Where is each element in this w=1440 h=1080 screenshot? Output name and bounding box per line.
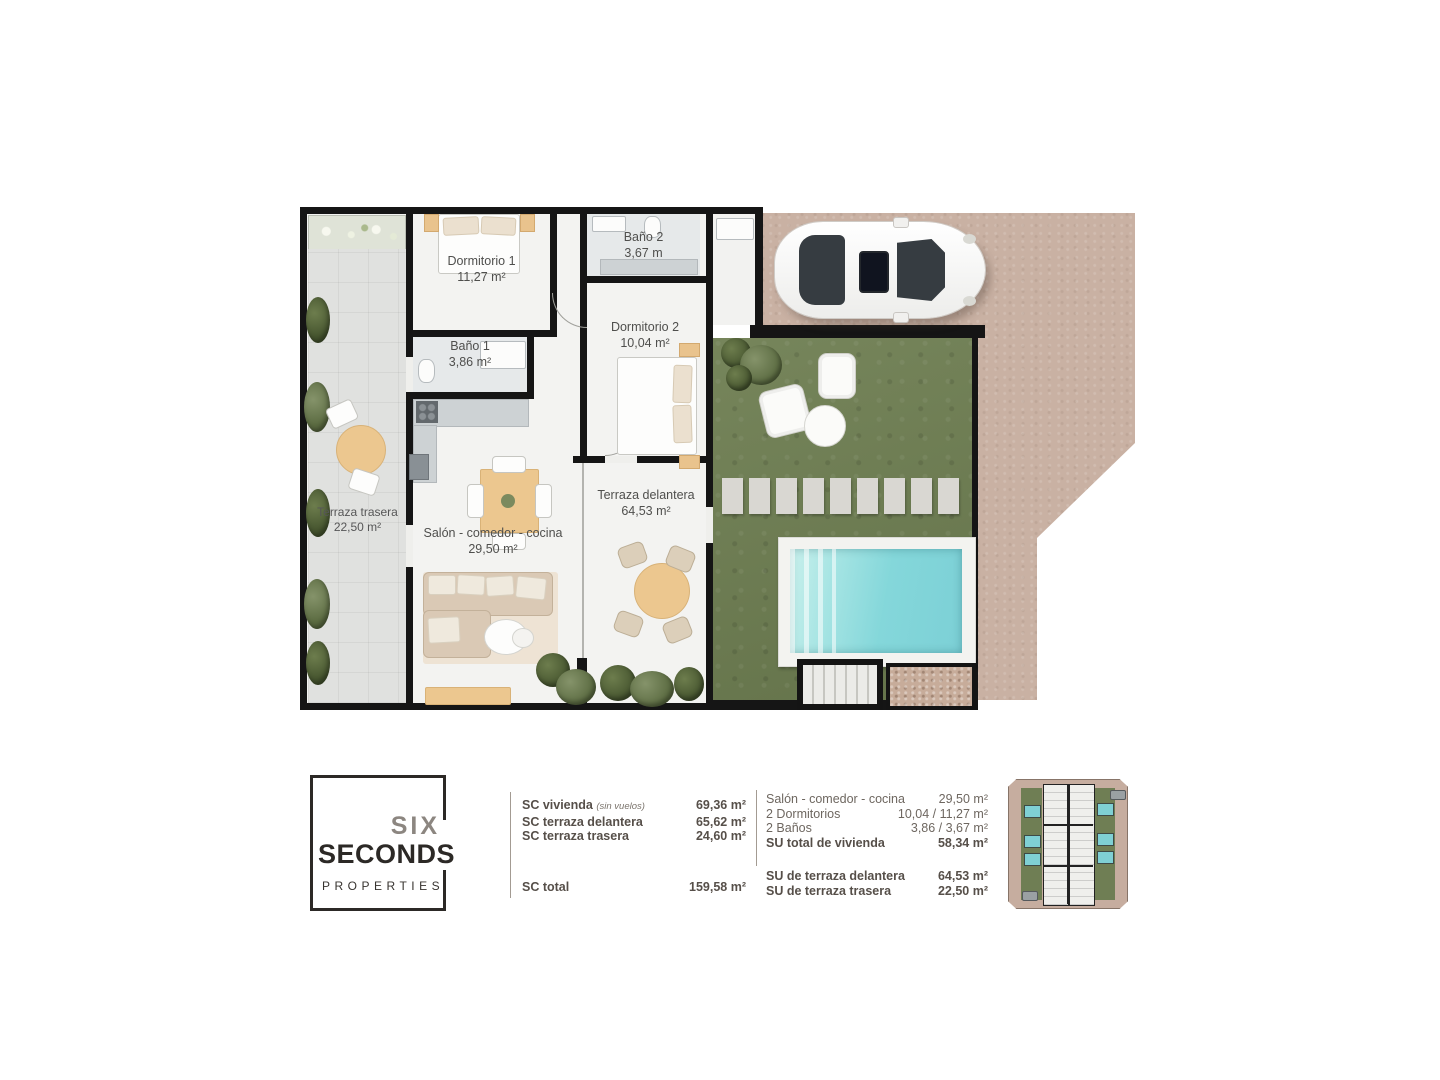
table-row: 2 Baños 3,86 / 3,67 m²	[766, 821, 988, 836]
row-value: 58,34 m²	[938, 836, 988, 851]
room-name: Salón - comedor - cocina	[410, 525, 576, 541]
table-divider-left	[510, 792, 511, 898]
thumb-pool	[1097, 833, 1114, 846]
table-row: SU total de vivienda 58,34 m²	[766, 836, 988, 851]
floor-plan: Dormitorio 1 11,27 m² Baño 2 3,67 m Baño…	[300, 207, 1135, 710]
stepping-stone	[749, 478, 770, 514]
row-value: 64,53 m²	[938, 869, 988, 884]
label-bano2: Baño 2 3,67 m	[587, 229, 700, 261]
room-name: Dormitorio 2	[587, 319, 703, 335]
dining-chair	[535, 484, 552, 518]
row-label: SC terraza trasera	[522, 829, 629, 844]
thumb-pool	[1024, 853, 1041, 866]
thumb-pool	[1097, 803, 1114, 816]
row-label: 2 Dormitorios	[766, 807, 840, 822]
stepping-stone	[857, 478, 878, 514]
dining-chair	[492, 456, 526, 473]
wall-bath1-bottom	[406, 392, 534, 399]
sc-total-row: SC total 159,58 m²	[522, 880, 746, 895]
table-row: Salón - comedor - cocina 29,50 m²	[766, 792, 988, 807]
sideboard	[425, 687, 511, 705]
table-row: 2 Dormitorios 10,04 / 11,27 m²	[766, 807, 988, 822]
row-label: 2 Baños	[766, 821, 812, 836]
thumb-car	[1110, 790, 1126, 800]
wall-bath2-left	[580, 214, 587, 276]
room-name: Dormitorio 1	[413, 253, 550, 269]
car-mirror	[893, 217, 909, 228]
salon-terrace-divider	[582, 463, 584, 659]
sofa-cushion	[428, 575, 456, 595]
room-area: 29,50 m²	[410, 541, 576, 557]
kitchen-stove	[416, 401, 438, 423]
logo-word-seconds: SECONDS	[318, 839, 456, 870]
room-name: Baño 2	[587, 229, 700, 245]
sofa-cushion	[485, 575, 514, 597]
room-area: 64,53 m²	[587, 503, 705, 519]
label-dormitorio1: Dormitorio 1 11,27 m²	[413, 253, 550, 285]
terrace-plant	[674, 667, 704, 701]
bath2-counter	[600, 259, 698, 275]
row-label: SC terraza delantera	[522, 815, 643, 830]
room-area: 10,04 m²	[587, 335, 703, 351]
pool-steps	[790, 549, 836, 653]
row-value: 159,58 m²	[689, 880, 746, 895]
row-value: 22,50 m²	[938, 884, 988, 899]
terrace-plant	[304, 579, 330, 629]
garden-door-opening	[706, 507, 713, 543]
pergola-beam	[750, 325, 985, 338]
thumb-unit-strip	[1069, 784, 1095, 906]
terrace-bistro-table	[336, 425, 386, 475]
row-value: 24,60 m²	[696, 829, 746, 844]
nightstand	[424, 214, 439, 232]
stepping-stone	[830, 478, 851, 514]
kitchen-appliance	[409, 454, 429, 480]
stepping-stone	[938, 478, 959, 514]
room-area: 3,86 m²	[413, 354, 527, 370]
su-column: Salón - comedor - cocina 29,50 m² 2 Dorm…	[766, 792, 988, 898]
thumb-divider	[1043, 865, 1093, 867]
dining-chair	[467, 484, 484, 518]
label-dormitorio2: Dormitorio 2 10,04 m²	[587, 319, 703, 351]
table-centerpiece-plant	[501, 494, 515, 508]
nightstand	[679, 455, 700, 469]
exterior-stairs	[797, 659, 883, 710]
row-label: Salón - comedor - cocina	[766, 792, 905, 807]
room-name: Baño 1	[413, 338, 527, 354]
stepping-stone	[884, 478, 905, 514]
thumb-car	[1022, 891, 1038, 901]
table-row: SU de terraza delantera 64,53 m²	[766, 869, 988, 884]
row-label: SU de terraza delantera	[766, 869, 905, 884]
coffee-table-small	[512, 628, 534, 648]
stepping-stone	[911, 478, 932, 514]
car-headlight	[963, 296, 976, 306]
label-terraza-delantera: Terraza delantera 64,53 m²	[587, 487, 705, 519]
row-value: 29,50 m²	[939, 792, 988, 807]
row-label: SU de terraza trasera	[766, 884, 891, 899]
stepping-stone	[776, 478, 797, 514]
label-terraza-trasera: Terraza trasera 22,50 m²	[308, 505, 407, 535]
car-windshield	[897, 239, 945, 301]
bed-pillow	[672, 365, 692, 404]
stepping-stone	[722, 478, 743, 514]
entry-closet	[716, 218, 754, 240]
logo-word-six: SIX	[391, 812, 440, 841]
wall-dorm1-right	[550, 214, 557, 330]
thumb-divider	[1043, 824, 1093, 826]
garden-armchair	[818, 353, 856, 399]
car-top-view	[775, 222, 985, 318]
garden-round-table	[804, 405, 846, 447]
terrace-plant	[630, 671, 674, 707]
label-salon: Salón - comedor - cocina 29,50 m²	[410, 525, 576, 557]
thumb-unit-strip	[1043, 784, 1069, 906]
sofa-cushion	[456, 574, 485, 595]
sc-column: SC vivienda (sin vuelos) 69,36 m² SC ter…	[522, 798, 746, 844]
window-opening	[406, 357, 413, 395]
nightstand	[520, 214, 535, 232]
wall-bath1-right	[527, 337, 534, 399]
row-value: 10,04 / 11,27 m²	[898, 807, 988, 822]
bed-pillow	[481, 216, 517, 236]
entry-landing	[713, 325, 750, 338]
bed-pillow	[443, 216, 480, 236]
six-seconds-logo: SIX SECONDS PROPERTIES	[310, 775, 446, 911]
stepping-stone	[803, 478, 824, 514]
room-name: Terraza delantera	[587, 487, 705, 503]
table-divider-middle	[756, 790, 757, 866]
indoor-plant	[556, 669, 596, 705]
thumb-pool	[1024, 835, 1041, 848]
wall-bath2-bottom	[580, 276, 713, 283]
room-area: 22,50 m²	[308, 520, 407, 535]
table-row: SC terraza delantera 65,62 m²	[522, 815, 746, 830]
row-label: SC vivienda	[522, 798, 593, 812]
terrace-plant	[306, 641, 330, 685]
row-note: (sin vuelos)	[596, 801, 645, 812]
thumb-pool	[1024, 805, 1041, 818]
row-value: 69,36 m²	[696, 798, 746, 815]
car-rear-window	[799, 235, 845, 305]
garden-plant	[726, 365, 752, 391]
room-area: 11,27 m²	[413, 269, 550, 285]
door-opening	[605, 456, 637, 463]
bed-pillow	[672, 405, 692, 444]
table-row: SC terraza trasera 24,60 m²	[522, 829, 746, 844]
entry-right-wall	[755, 207, 763, 338]
room-name: Terraza trasera	[308, 505, 407, 520]
sofa-cushion	[515, 575, 547, 600]
site-plan-thumbnail	[1008, 779, 1128, 909]
thumb-pool	[1097, 851, 1114, 864]
wall-dorm1-bottom	[406, 330, 557, 337]
room-area: 3,67 m	[587, 245, 700, 261]
planter-box	[308, 215, 406, 251]
areas-table: SC vivienda (sin vuelos) 69,36 m² SC ter…	[500, 786, 1000, 908]
gravel-patch	[886, 663, 976, 710]
sofa-cushion	[427, 616, 460, 644]
table-row: SC vivienda (sin vuelos) 69,36 m²	[522, 798, 746, 815]
terrace-plant	[306, 297, 330, 343]
label-bano1: Baño 1 3,86 m²	[413, 338, 527, 370]
logo-word-properties: PROPERTIES	[322, 879, 444, 893]
row-value: 3,86 / 3,67 m²	[911, 821, 988, 836]
table-row: SU de terraza trasera 22,50 m²	[766, 884, 988, 899]
row-label: SU total de vivienda	[766, 836, 885, 851]
car-sunroof	[859, 251, 889, 293]
thumb-divider	[1067, 784, 1069, 904]
car-headlight	[963, 234, 976, 244]
row-value: 65,62 m²	[696, 815, 746, 830]
row-label: SC total	[522, 880, 569, 895]
car-mirror	[893, 312, 909, 323]
terrace-plant	[304, 382, 330, 432]
